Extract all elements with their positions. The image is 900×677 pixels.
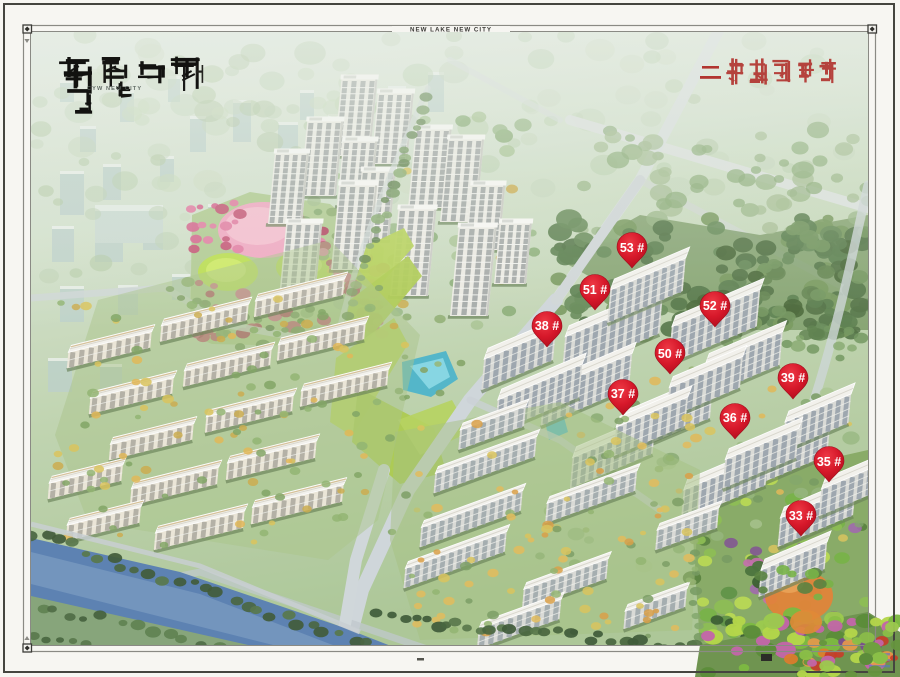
svg-text:33 #: 33 # xyxy=(789,509,813,523)
svg-text:52 #: 52 # xyxy=(703,299,727,313)
svg-text:50 #: 50 # xyxy=(658,347,682,361)
svg-text:CYW NEW CITY: CYW NEW CITY xyxy=(87,86,142,92)
svg-text:39 #: 39 # xyxy=(781,371,805,385)
svg-text:51 #: 51 # xyxy=(583,283,607,297)
svg-text:37 #: 37 # xyxy=(611,387,635,401)
svg-text:NEW LAKE NEW CITY: NEW LAKE NEW CITY xyxy=(410,27,492,34)
svg-text:36 #: 36 # xyxy=(723,411,747,425)
svg-text:53 #: 53 # xyxy=(620,241,644,255)
svg-text:38 #: 38 # xyxy=(535,319,559,333)
svg-text:35 #: 35 # xyxy=(817,455,841,469)
